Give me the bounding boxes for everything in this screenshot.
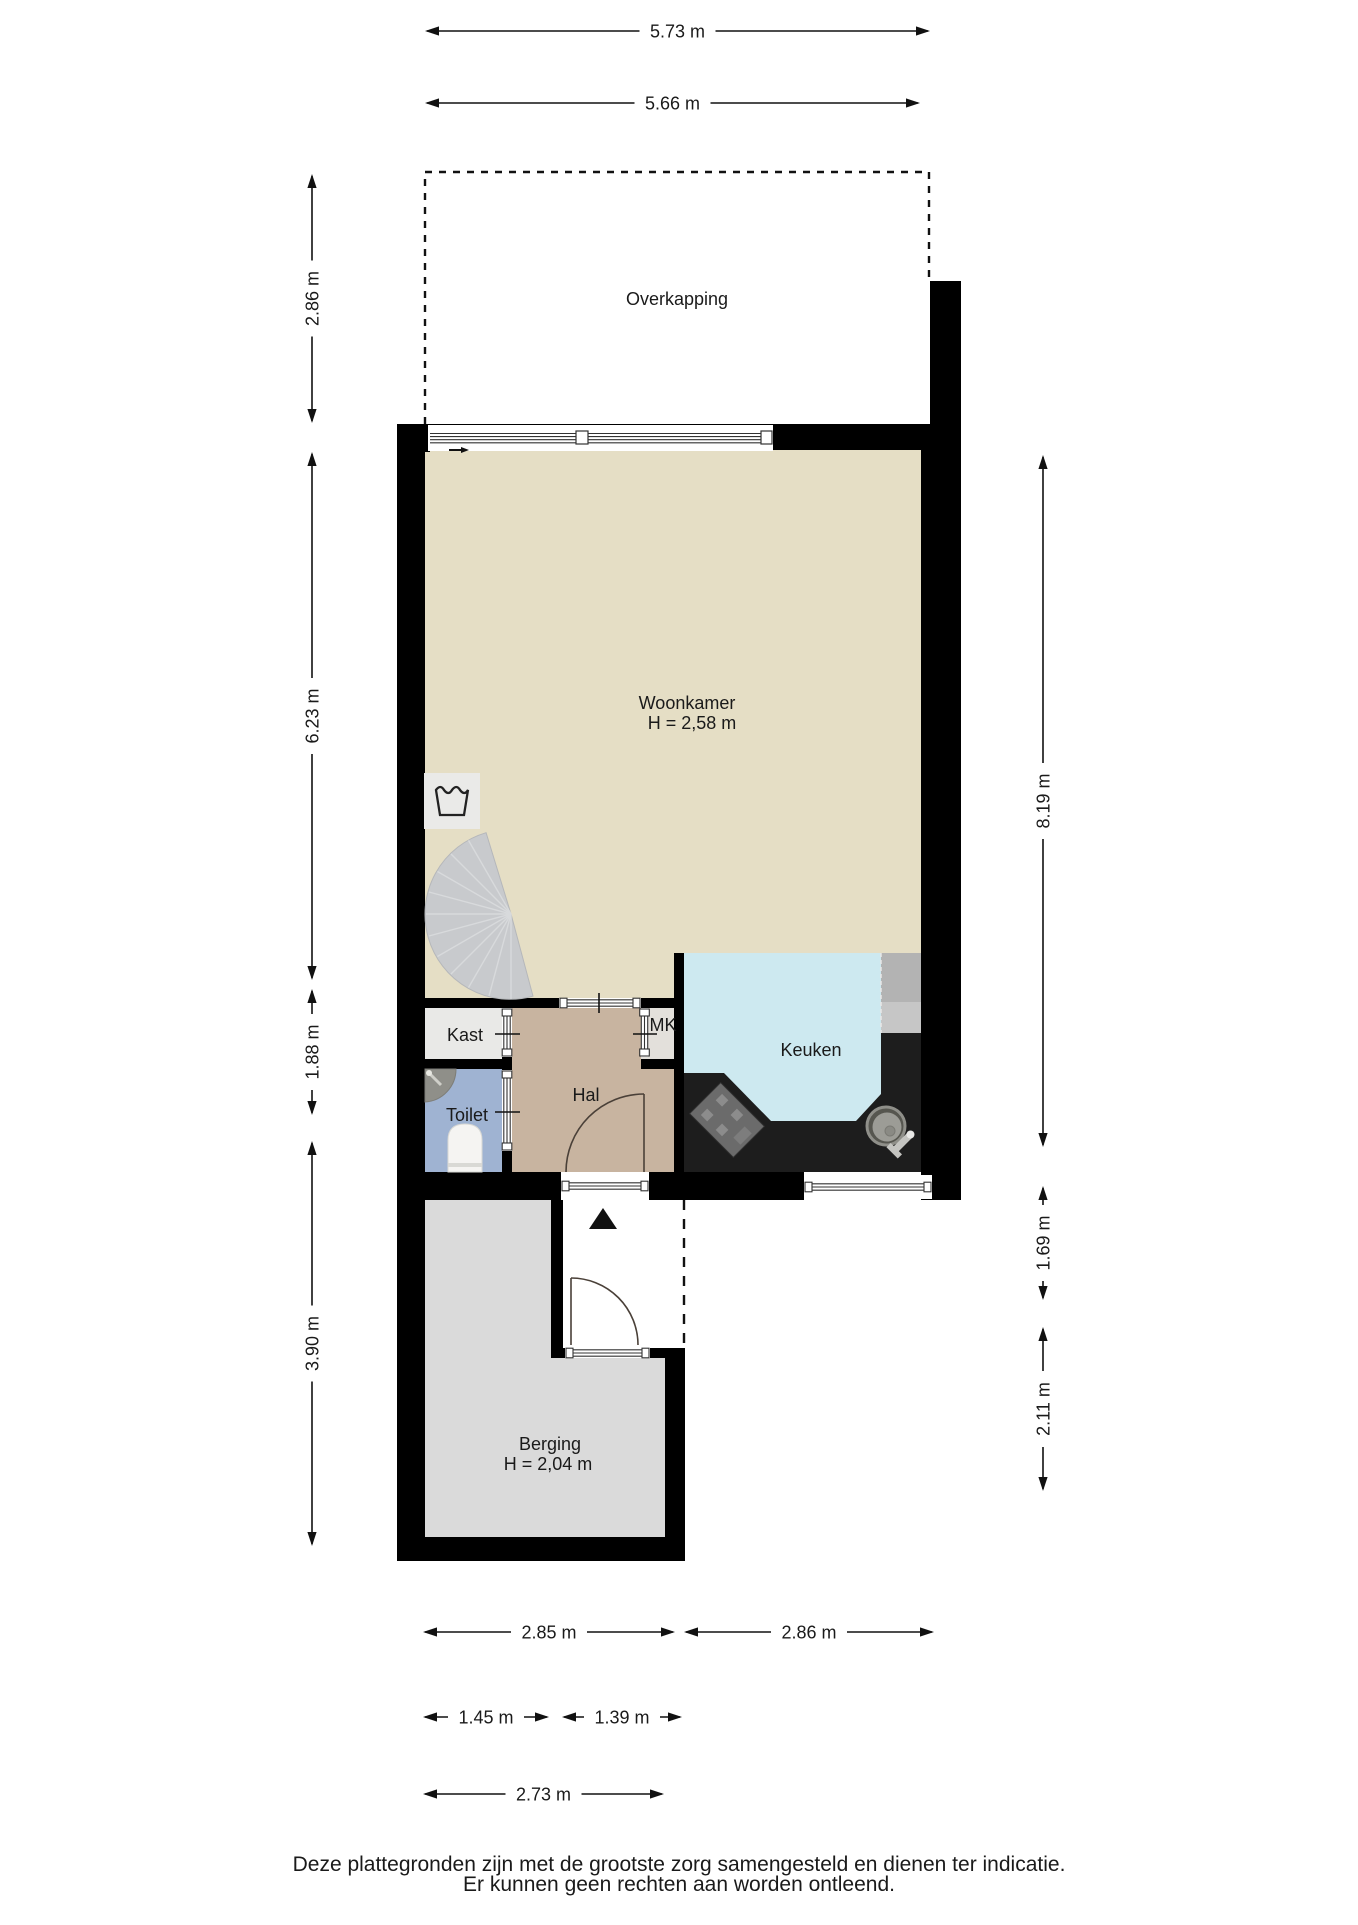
svg-text:MK: MK [650, 1015, 677, 1035]
svg-text:Keuken: Keuken [780, 1040, 841, 1060]
svg-text:2.86 m: 2.86 m [303, 271, 323, 326]
svg-text:2.86 m: 2.86 m [781, 1623, 836, 1643]
svg-text:Woonkamer: Woonkamer [639, 693, 736, 713]
svg-text:1.45 m: 1.45 m [458, 1708, 513, 1728]
svg-text:1.88 m: 1.88 m [303, 1024, 323, 1079]
svg-text:H = 2,58 m: H = 2,58 m [648, 713, 737, 733]
svg-text:Berging: Berging [519, 1434, 581, 1454]
svg-text:1.69 m: 1.69 m [1034, 1215, 1054, 1270]
svg-text:8.19 m: 8.19 m [1034, 773, 1054, 828]
svg-text:1.39 m: 1.39 m [594, 1708, 649, 1728]
svg-text:Hal: Hal [572, 1085, 599, 1105]
svg-text:Toilet: Toilet [446, 1105, 488, 1125]
svg-text:Er kunnen geen rechten aan wor: Er kunnen geen rechten aan worden ontlee… [463, 1873, 895, 1896]
svg-text:3.90 m: 3.90 m [303, 1316, 323, 1371]
svg-text:H = 2,04 m: H = 2,04 m [504, 1454, 593, 1474]
svg-text:5.66 m: 5.66 m [645, 94, 700, 114]
svg-text:Kast: Kast [447, 1025, 483, 1045]
svg-text:6.23 m: 6.23 m [303, 688, 323, 743]
svg-text:2.11 m: 2.11 m [1034, 1382, 1054, 1436]
svg-text:5.73 m: 5.73 m [650, 22, 705, 42]
svg-text:Overkapping: Overkapping [626, 289, 728, 309]
svg-text:2.73 m: 2.73 m [516, 1785, 571, 1805]
svg-text:2.85 m: 2.85 m [521, 1623, 576, 1643]
